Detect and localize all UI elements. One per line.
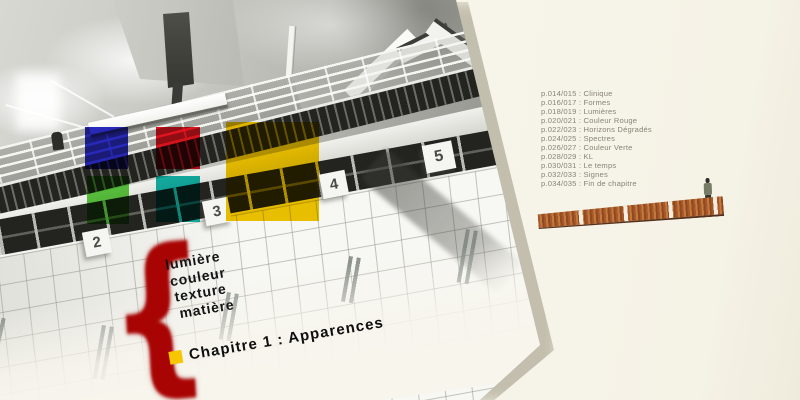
toc-separator: :	[577, 143, 584, 152]
toc-separator: :	[577, 125, 584, 134]
toc-page: p.016/017	[541, 98, 577, 107]
overlay-square-red	[156, 127, 200, 169]
keyword-list: lumière couleur texture matière	[164, 247, 235, 322]
toc-page: p.026/027	[541, 143, 577, 152]
toc-item[interactable]: p.028/029 : KL	[541, 152, 652, 161]
toc-page: p.034/035	[541, 179, 577, 188]
toc-title: Horizons Dégradés	[584, 125, 652, 134]
toc-separator: :	[577, 98, 584, 107]
toc-item[interactable]: p.030/031 : Le temps	[541, 161, 652, 170]
toc-page: p.028/029	[541, 152, 577, 161]
toc-item[interactable]: p.024/025 : Spectres	[541, 134, 652, 143]
toc-separator: :	[577, 107, 584, 116]
toc-separator: :	[577, 116, 584, 125]
toc-title: Spectres	[584, 134, 616, 143]
toc-page: p.018/019	[541, 107, 577, 116]
person-torso	[704, 183, 712, 195]
toc-item[interactable]: p.022/023 : Horizons Dégradés	[541, 125, 652, 134]
toc-separator: :	[577, 134, 584, 143]
toc-page: p.032/033	[541, 170, 577, 179]
lane-number: 4	[328, 175, 339, 193]
lane-number: 3	[211, 202, 222, 220]
chapter-bullet-icon	[168, 350, 183, 365]
toc-title: Couleur Rouge	[584, 116, 638, 125]
toc-title: Clinique	[584, 89, 613, 98]
toc-page: p.022/023	[541, 125, 577, 134]
toc-title: Signes	[584, 170, 608, 179]
toc-page: p.024/025	[541, 134, 577, 143]
toc-title: KL	[584, 152, 594, 161]
toc-title: Le temps	[584, 161, 617, 170]
pool-lane-marker: 5	[422, 140, 457, 173]
toc-item[interactable]: p.032/033 : Signes	[541, 170, 652, 179]
toc-separator: :	[577, 161, 584, 170]
pool-lane-marker: 4	[319, 170, 349, 200]
toc-title: Fin de chapitre	[584, 179, 637, 188]
toc-separator: :	[577, 179, 584, 188]
toc-page: p.030/031	[541, 161, 577, 170]
toc-title: Lumières	[584, 107, 617, 116]
toc-item[interactable]: p.026/027 : Couleur Verte	[541, 143, 652, 152]
overlay-square-yellow	[226, 122, 319, 221]
table-of-contents: p.014/015 : Clinique p.016/017 : Formes …	[541, 89, 652, 188]
toc-title: Couleur Verte	[584, 143, 633, 152]
book-spread-page: 2 3 4 5 { lumière couleur texture matièr…	[0, 0, 800, 400]
toc-title: Formes	[584, 98, 611, 107]
toc-item[interactable]: p.018/019 : Lumières	[541, 107, 652, 116]
lane-number: 2	[91, 233, 102, 251]
toc-separator: :	[577, 170, 584, 179]
toc-item[interactable]: p.034/035 : Fin de chapitre	[541, 179, 652, 188]
wooden-fence-strip	[537, 196, 724, 230]
person-on-walkway	[51, 131, 64, 150]
lane-number: 5	[433, 147, 445, 166]
toc-page: p.020/021	[541, 116, 577, 125]
toc-item[interactable]: p.020/021 : Couleur Rouge	[541, 116, 652, 125]
overlay-square-blue	[85, 127, 128, 169]
toc-separator: :	[577, 89, 584, 98]
toc-item[interactable]: p.016/017 : Formes	[541, 98, 652, 107]
toc-separator: :	[577, 152, 584, 161]
toc-page: p.014/015	[541, 89, 577, 98]
toc-item[interactable]: p.014/015 : Clinique	[541, 89, 652, 98]
